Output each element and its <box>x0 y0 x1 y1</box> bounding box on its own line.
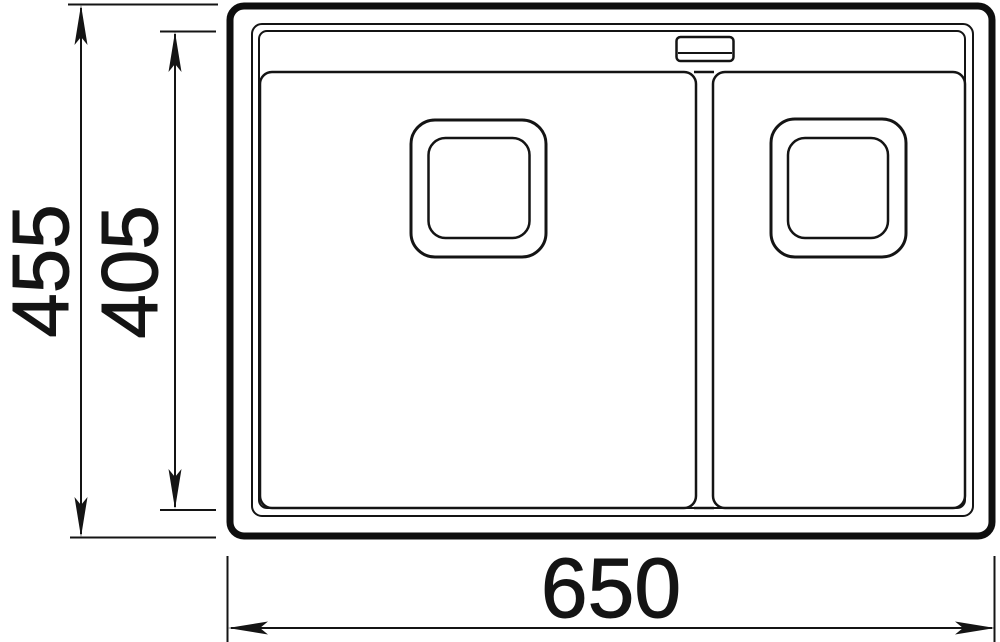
sink-outer-edge <box>230 6 992 536</box>
sink-rim-inner-line <box>259 31 965 508</box>
sink-rim-outer-line <box>252 24 973 516</box>
dimension-overall-width: 650 <box>228 541 996 642</box>
sink-plan-view <box>230 6 992 536</box>
sink-dimension-diagram: 455 405 650 <box>0 0 1000 642</box>
left-drain-outer <box>411 120 546 257</box>
right-drain-inner <box>788 138 888 238</box>
dim-label-overall-width: 650 <box>541 541 681 635</box>
right-drain-outer <box>771 119 906 257</box>
dim-label-overall-depth: 455 <box>0 204 85 337</box>
dim-label-inner-depth: 405 <box>85 205 174 338</box>
technical-drawing-page: 455 405 650 <box>0 0 1000 642</box>
dimension-inner-depth: 405 <box>85 32 216 511</box>
faucet-hole-plate <box>677 37 734 61</box>
left-drain-inner <box>429 138 530 238</box>
